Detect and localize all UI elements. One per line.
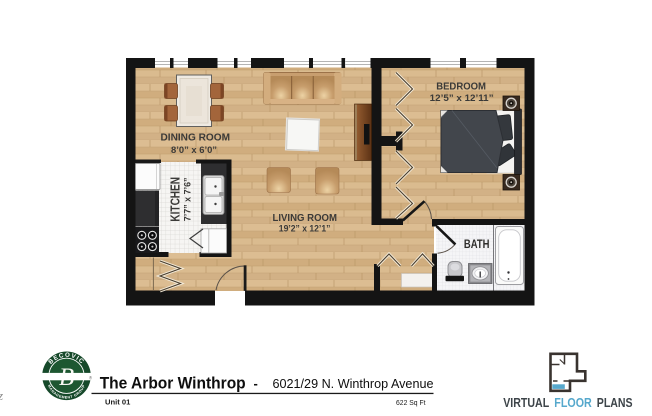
svg-text:VIRTUAL: VIRTUAL	[503, 396, 549, 410]
svg-text:19’2” x 12’1”: 19’2” x 12’1”	[279, 224, 331, 235]
svg-text:FLOOR: FLOOR	[554, 396, 592, 410]
svg-text:8’0” x 6’0”: 8’0” x 6’0”	[171, 145, 217, 156]
svg-text:DINING ROOM: DINING ROOM	[161, 132, 231, 143]
svg-text:PLANS: PLANS	[597, 396, 633, 410]
svg-text:BATH: BATH	[464, 239, 490, 251]
svg-text:7’7” x 7’6”: 7’7” x 7’6”	[183, 177, 194, 221]
svg-text:z: z	[0, 388, 3, 403]
svg-text:12’5” x 12’11”: 12’5” x 12’11”	[430, 93, 494, 104]
svg-text:6021/29 N. Winthrop Avenue: 6021/29 N. Winthrop Avenue	[273, 377, 434, 391]
svg-text:622 Sq Ft: 622 Sq Ft	[396, 398, 426, 407]
svg-text:The Arbor Winthrop: The Arbor Winthrop	[100, 375, 246, 393]
svg-text:LIVING ROOM: LIVING ROOM	[273, 213, 338, 224]
svg-text:BEDROOM: BEDROOM	[436, 81, 486, 92]
svg-text:KITCHEN: KITCHEN	[169, 177, 183, 222]
svg-text:Unit 01: Unit 01	[105, 397, 131, 406]
svg-text:-: -	[254, 376, 258, 391]
